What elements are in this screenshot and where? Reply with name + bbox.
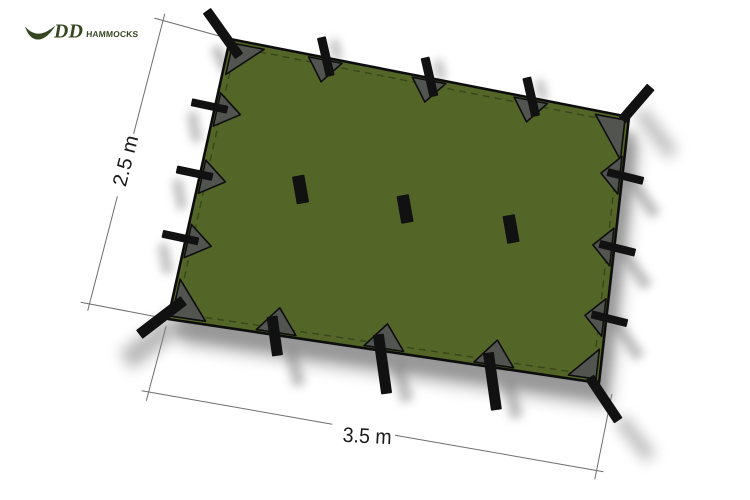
- svg-text:HAMMOCKS: HAMMOCKS: [86, 29, 139, 39]
- svg-text:DD: DD: [53, 21, 83, 43]
- svg-text:3.5 m: 3.5 m: [342, 424, 392, 450]
